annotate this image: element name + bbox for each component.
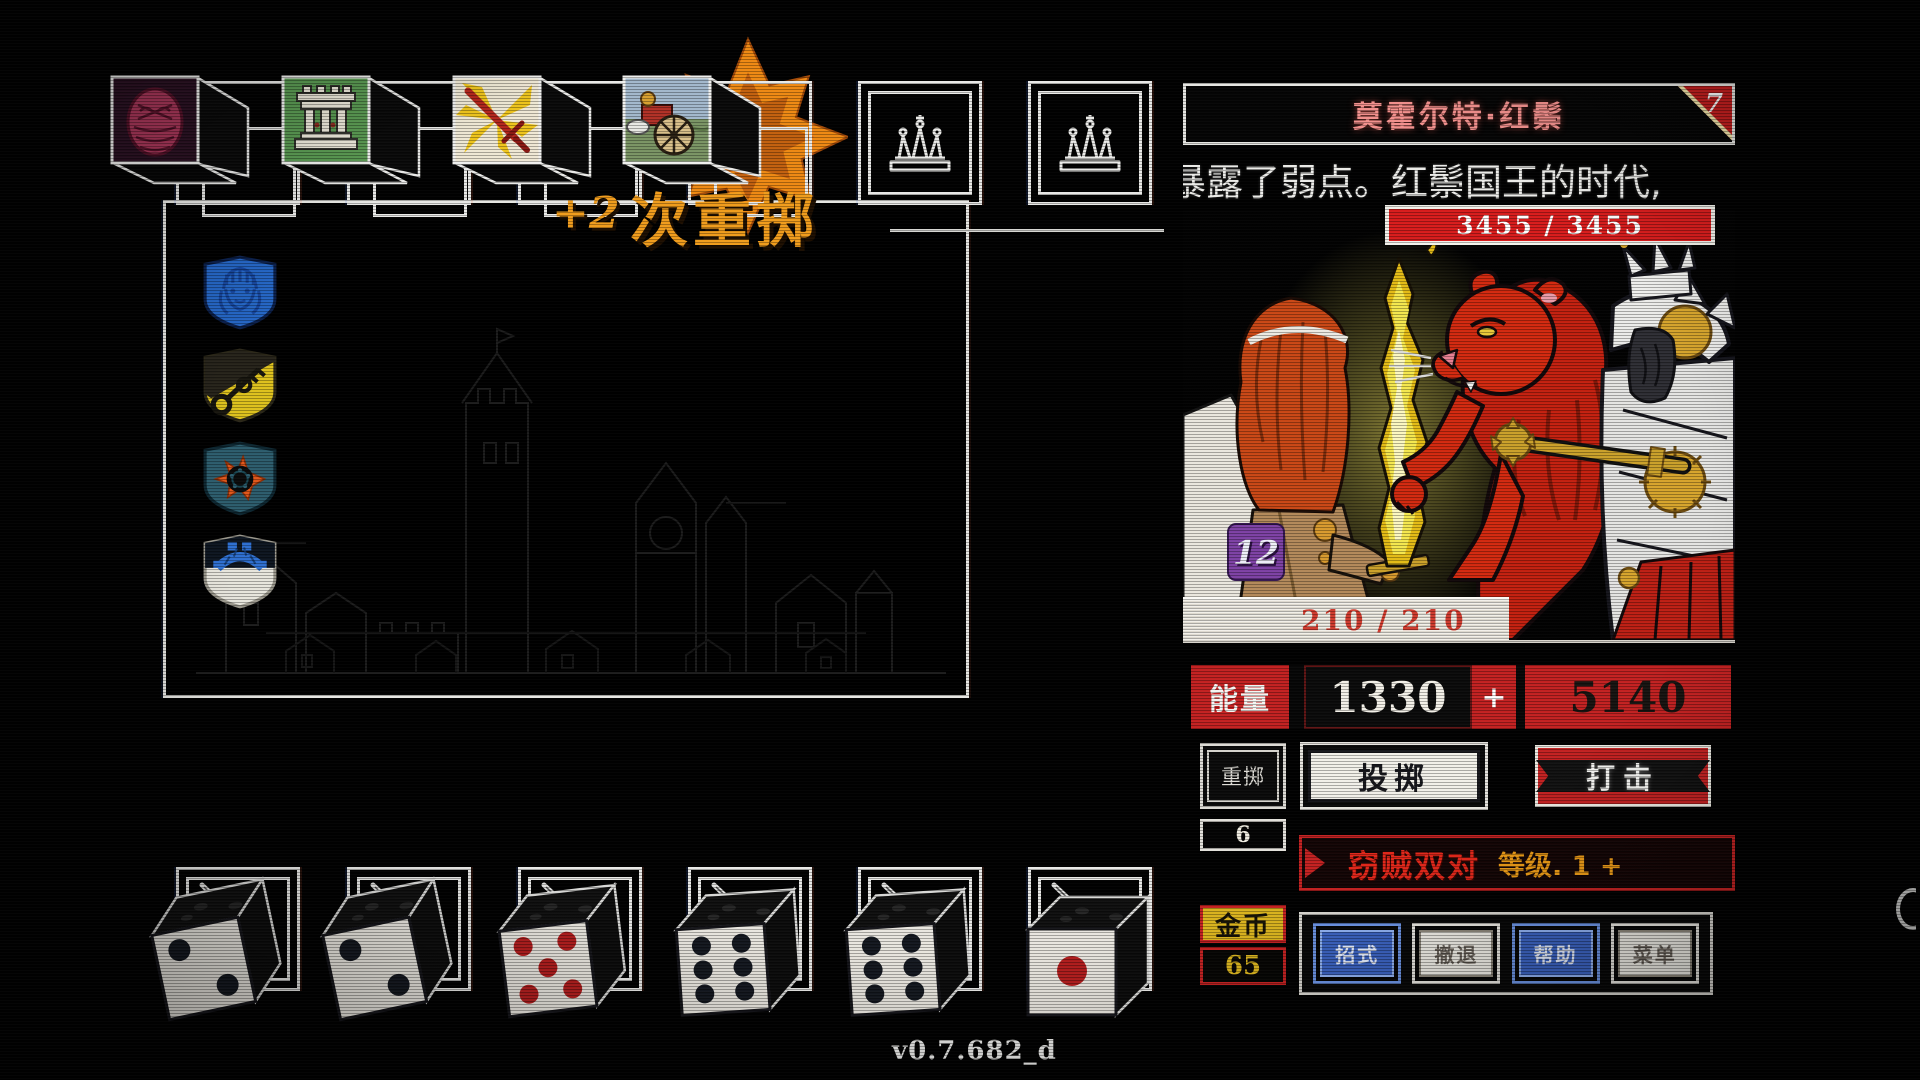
tier-number: 7 — [1705, 89, 1723, 119]
stone-bridge-crest-icon — [198, 533, 282, 611]
defense-value: 12 — [1233, 533, 1279, 572]
energy-row: 能量 1330 + 5140 — [1191, 665, 1731, 729]
retreat-button[interactable]: 撤退 — [1412, 923, 1500, 984]
menu-button[interactable]: 菜单 — [1611, 923, 1699, 984]
defense-badge: 12 — [1227, 523, 1285, 581]
hand-die-5[interactable] — [858, 867, 982, 991]
die-face-1 — [1020, 889, 1170, 1024]
game-screen: +2 次重掷 — [0, 0, 1920, 1080]
enemy-panel: 莫霍尔特·红鬃 7 暴露了弱点。红鬃国王的时代, — [1183, 83, 1735, 998]
gold-key-crest-icon — [198, 347, 282, 425]
combo-banner[interactable]: 窃贼双对 等级. 1 + — [1299, 835, 1735, 891]
enemy-description-row: 暴露了弱点。红鬃国王的时代, — [1183, 148, 1735, 210]
energy-current: 1330 — [1304, 665, 1472, 729]
crest-list — [198, 254, 284, 626]
player-hp-value: 210 / 210 — [1301, 604, 1466, 637]
empty-die-slot-5[interactable] — [858, 81, 982, 205]
die-face-2 — [307, 867, 482, 1030]
die-face-5 — [486, 874, 651, 1026]
die-face-2 — [136, 867, 311, 1030]
ruins-die-face — [281, 75, 431, 195]
energy-label: 能量 — [1191, 665, 1289, 729]
crown-slot-icon — [1052, 114, 1128, 178]
ember-wheel-crest-icon — [198, 440, 282, 518]
reroll-bonus-count: +2 — [552, 188, 619, 239]
reroll-button[interactable]: 重掷 — [1200, 743, 1286, 809]
menu-button-row: 招式撤退帮助菜单 — [1299, 912, 1713, 995]
energy-preview: 5140 — [1525, 665, 1731, 729]
blue-maiden-crest — [198, 254, 284, 336]
menu-button-label: 菜单 — [1618, 930, 1692, 977]
stone-bridge-crest — [198, 533, 284, 615]
hand-die-6[interactable] — [1028, 867, 1152, 991]
retreat-button-label: 撤退 — [1419, 930, 1493, 977]
screen-edge-artifact — [1896, 888, 1920, 930]
die-face-6 — [665, 880, 824, 1025]
help-button-label: 帮助 — [1519, 930, 1593, 977]
moves-button-label: 招式 — [1320, 930, 1394, 977]
reroll-bonus-label: 次重掷 — [630, 174, 819, 258]
tier-badge: 7 — [1676, 86, 1732, 142]
enemy-description: 暴露了弱点。红鬃国王的时代, — [1183, 152, 1662, 206]
hand-die-4[interactable] — [688, 867, 812, 991]
ember-wheel-crest — [198, 440, 284, 522]
strike-banner: 打击 — [1536, 760, 1710, 792]
help-button[interactable]: 帮助 — [1512, 923, 1600, 984]
enemy-hp-value: 3455 / 3455 — [1456, 211, 1644, 240]
castle-skyline-art — [166, 203, 966, 695]
plus-icon: + — [1472, 665, 1516, 729]
enemy-hp-bar: 3455 / 3455 — [1385, 205, 1715, 245]
crown-slot-icon — [882, 114, 958, 178]
energy-gap — [1516, 665, 1525, 729]
combo-name: 窃贼双对 — [1348, 841, 1480, 886]
enemy-name: 莫霍尔特·红鬃 — [1353, 92, 1565, 136]
divider-line — [890, 229, 1164, 232]
hand-die-2[interactable] — [347, 867, 471, 991]
throw-button[interactable]: 投掷 — [1300, 742, 1488, 810]
die-face-6 — [835, 880, 994, 1025]
enemy-title-bar: 莫霍尔特·红鬃 7 — [1183, 83, 1735, 145]
blue-maiden-crest-icon — [198, 254, 282, 332]
strike-button[interactable]: 打击 — [1535, 745, 1711, 807]
energy-gap — [1289, 665, 1304, 729]
reroll-button-label: 重掷 — [1207, 750, 1279, 802]
reroll-count: 6 — [1200, 819, 1286, 851]
empty-die-slot-6[interactable] — [1028, 81, 1152, 205]
gold-label: 金币 — [1200, 905, 1286, 943]
sword-burst-die-face — [452, 75, 602, 195]
throw-button-label: 投掷 — [1308, 750, 1480, 802]
player-hp-bar: 210 / 210 — [1183, 597, 1509, 640]
gold-amount: 65 — [1200, 947, 1286, 985]
version-label: v0.7.682_d — [892, 1036, 1057, 1066]
hand-die-3[interactable] — [518, 867, 642, 991]
combo-level: 等级. 1 + — [1498, 844, 1622, 883]
moves-button[interactable]: 招式 — [1313, 923, 1401, 984]
chevron-right-icon — [1305, 848, 1325, 878]
hand-die-1[interactable] — [176, 867, 300, 991]
mask-die-face — [110, 75, 260, 195]
gold-key-crest — [198, 347, 284, 429]
strike-button-label: 打击 — [1586, 755, 1660, 797]
